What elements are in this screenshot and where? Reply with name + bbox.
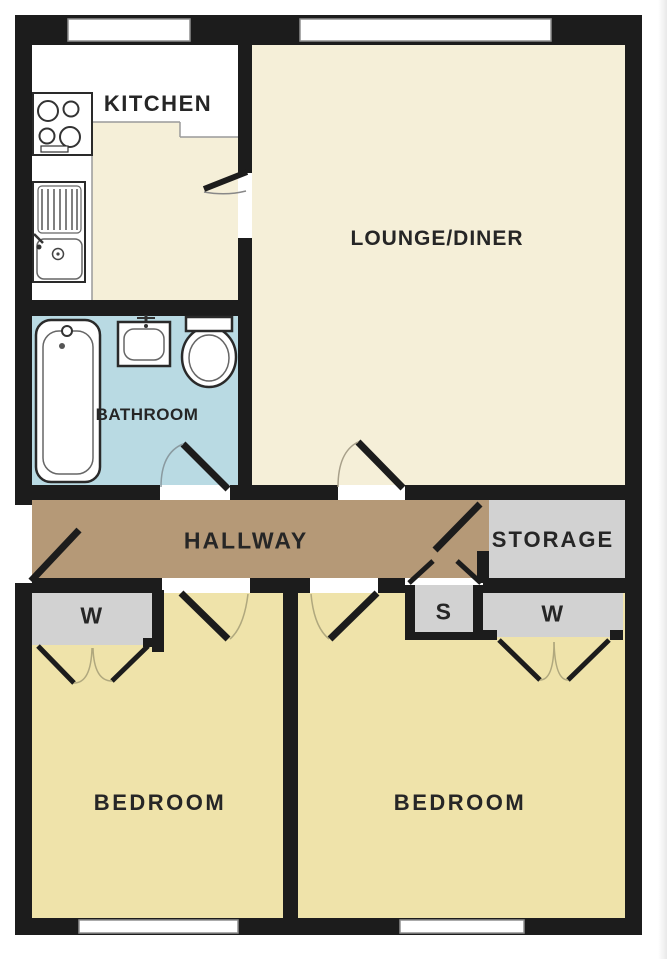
room-label-bedroom-left: BEDROOM [94,790,226,816]
wall-cupboard-right [473,585,483,640]
wall-wardrobe-right-stub-b [610,630,623,640]
lounge-floor [252,45,625,485]
wall-hall-bottom-b [250,578,310,593]
kitchen-sink-icon [33,182,85,282]
page-edge-shade [658,0,667,959]
basin-icon [118,315,170,366]
hob-icon [33,93,92,155]
room-label-bathroom: BATHROOM [96,405,199,425]
floors [32,45,625,918]
wall-hall-top-b [230,485,338,500]
wall-hall-bottom-c [378,578,405,593]
wall-bedroom-divider [283,593,298,918]
wall-cupboard-bottom [405,632,483,640]
window-lounge [300,19,551,41]
wall-cupboard-left [405,585,415,640]
window-bedroom-right [400,920,524,933]
toilet-icon [182,317,236,387]
bedroom-right-floor [298,593,625,918]
wall-left-lower [15,583,32,935]
room-label-storage: STORAGE [492,527,614,553]
wall-left-upper [15,15,32,505]
room-label-wardrobe-left: W [80,603,103,630]
wall-bathroom-lounge [238,316,252,500]
wall-hall-bottom-a [32,578,162,593]
wall-hall-bottom-d [483,578,625,593]
wall-kitchen-bathroom [32,300,238,316]
wall-wardrobe-right-stub-a [483,630,497,640]
wall-hall-top-c [405,485,642,500]
bathtub-icon [36,320,100,482]
window-kitchen [68,19,190,41]
wall-right [625,15,642,935]
kitchen-floor [92,122,238,300]
room-label-kitchen: KITCHEN [104,91,212,117]
wall-hall-top-a [32,485,160,500]
room-label-hallway: HALLWAY [184,528,308,555]
room-label-cupboard-s: S [436,599,453,626]
room-label-wardrobe-right: W [541,601,564,628]
wall-kitchen-lounge-upper [238,45,252,173]
room-label-lounge-diner: LOUNGE/DINER [350,227,523,251]
wall-kitchen-lounge-lower [238,238,252,316]
floor-plan: KITCHEN LOUNGE/DINER BATHROOM HALLWAY ST… [0,0,667,959]
window-bedroom-left [79,920,238,933]
room-label-bedroom-right: BEDROOM [394,790,526,816]
